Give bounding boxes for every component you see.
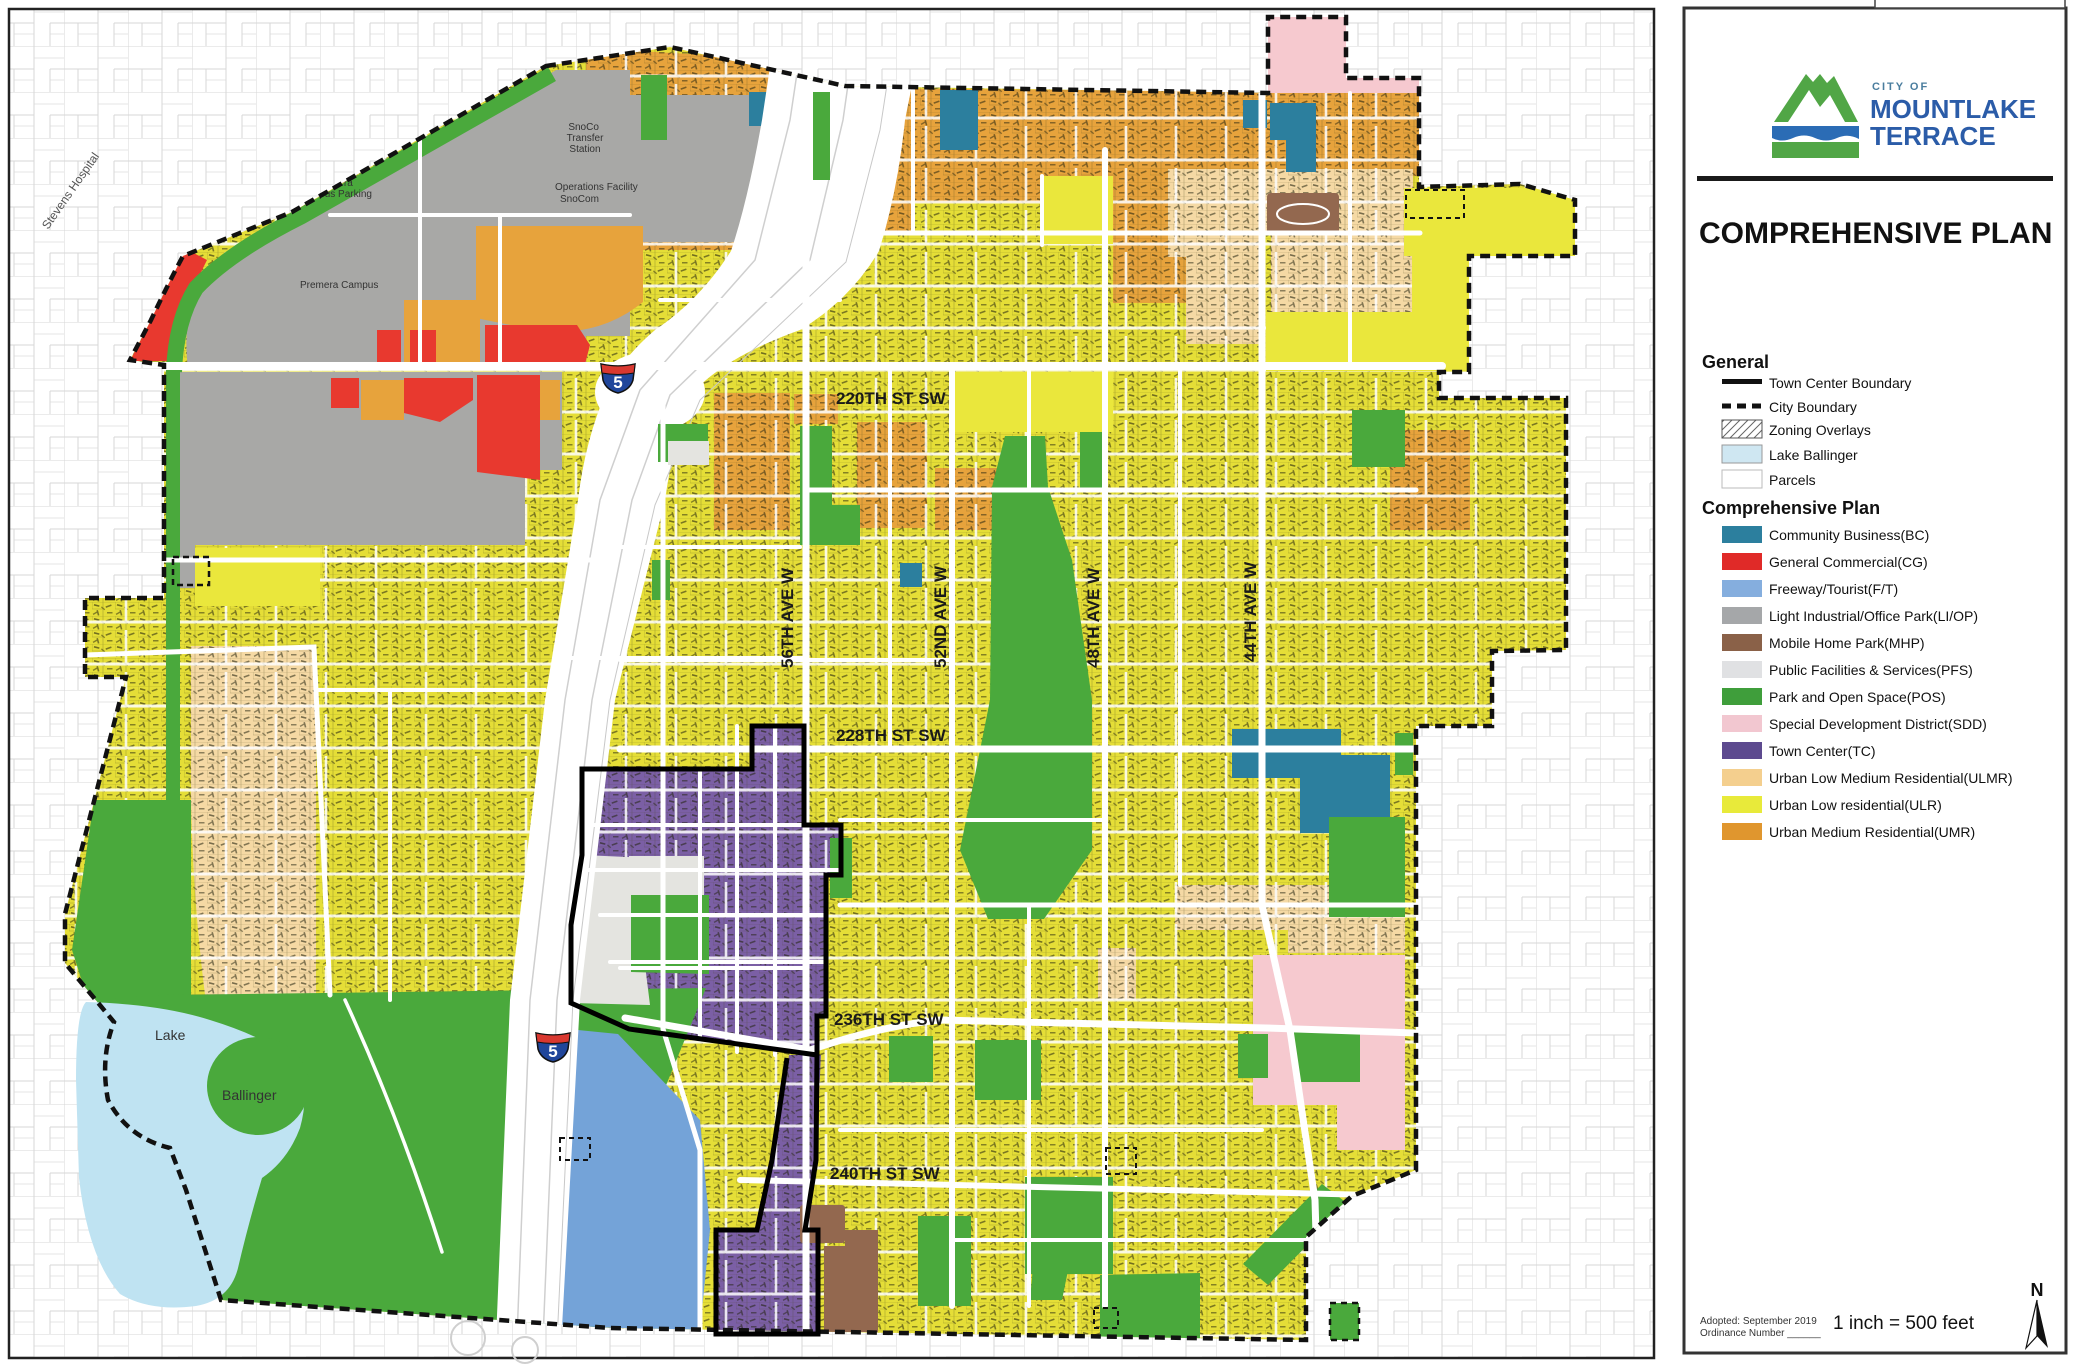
svg-text:Ballinger: Ballinger <box>222 1087 277 1103</box>
svg-text:220TH ST SW: 220TH ST SW <box>836 389 947 408</box>
svg-text:Adopted: September 2019: Adopted: September 2019 <box>1700 1316 1817 1327</box>
svg-text:Town Center(TC): Town Center(TC) <box>1769 743 1876 759</box>
svg-text:Mobile Home Park(MHP): Mobile Home Park(MHP) <box>1769 635 1925 651</box>
svg-text:Light Industrial/Office Park(L: Light Industrial/Office Park(LI/OP) <box>1769 608 1978 624</box>
svg-text:Comprehensive Plan: Comprehensive Plan <box>1702 498 1880 518</box>
svg-text:Lake: Lake <box>155 1027 186 1043</box>
svg-text:5: 5 <box>613 373 622 392</box>
svg-text:Operations Facility: Operations Facility <box>555 182 638 193</box>
svg-text:Urban Medium Residential(UMR): Urban Medium Residential(UMR) <box>1769 824 1975 840</box>
svg-text:SnoCo TransferStation: SnoCo TransferStation <box>567 122 605 155</box>
svg-text:CITY OF: CITY OF <box>1872 81 1929 93</box>
svg-text:Zoning Overlays: Zoning Overlays <box>1769 422 1871 438</box>
svg-text:TERRACE: TERRACE <box>1870 121 1996 151</box>
svg-text:Public Facilities & Services(P: Public Facilities & Services(PFS) <box>1769 662 1973 678</box>
svg-text:52ND AVE W: 52ND AVE W <box>931 565 950 668</box>
svg-text:Ordinance Number ______: Ordinance Number ______ <box>1700 1328 1821 1339</box>
svg-text:Premera Campus: Premera Campus <box>300 280 378 291</box>
svg-text:General: General <box>1702 352 1769 372</box>
svg-text:236TH ST SW: 236TH ST SW <box>834 1010 945 1029</box>
svg-text:N: N <box>2031 1280 2044 1300</box>
svg-text:44TH AVE W: 44TH AVE W <box>1241 561 1260 662</box>
svg-text:COMPREHENSIVE PLAN: COMPREHENSIVE PLAN <box>1699 217 2052 250</box>
svg-text:228TH ST SW: 228TH ST SW <box>836 726 947 745</box>
svg-text:Parcels: Parcels <box>1769 472 1816 488</box>
svg-text:Freeway/Tourist(F/T): Freeway/Tourist(F/T) <box>1769 581 1898 597</box>
svg-text:Community Business(BC): Community Business(BC) <box>1769 527 1929 543</box>
svg-text:Urban Low Medium Residential(U: Urban Low Medium Residential(ULMR) <box>1769 770 2013 786</box>
svg-text:General Commercial(CG): General Commercial(CG) <box>1769 554 1928 570</box>
svg-text:5: 5 <box>548 1042 557 1061</box>
svg-text:Urban Low residential(ULR): Urban Low residential(ULR) <box>1769 797 1942 813</box>
svg-text:1 inch = 500 feet: 1 inch = 500 feet <box>1833 1313 1975 1334</box>
svg-text:SnoCom: SnoCom <box>560 194 599 205</box>
svg-text:MOUNTLAKE: MOUNTLAKE <box>1870 94 2036 124</box>
svg-text:Park and Open Space(POS): Park and Open Space(POS) <box>1769 689 1946 705</box>
svg-text:240TH ST SW: 240TH ST SW <box>830 1164 941 1183</box>
svg-text:Special Development District(S: Special Development District(SDD) <box>1769 716 1987 732</box>
svg-text:City Boundary: City Boundary <box>1769 399 1857 415</box>
svg-text:56TH AVE W: 56TH AVE W <box>778 567 797 668</box>
svg-text:Town Center Boundary: Town Center Boundary <box>1769 375 1911 391</box>
svg-text:48TH AVE W: 48TH AVE W <box>1084 567 1103 668</box>
svg-text:Lake Ballinger: Lake Ballinger <box>1769 447 1858 463</box>
